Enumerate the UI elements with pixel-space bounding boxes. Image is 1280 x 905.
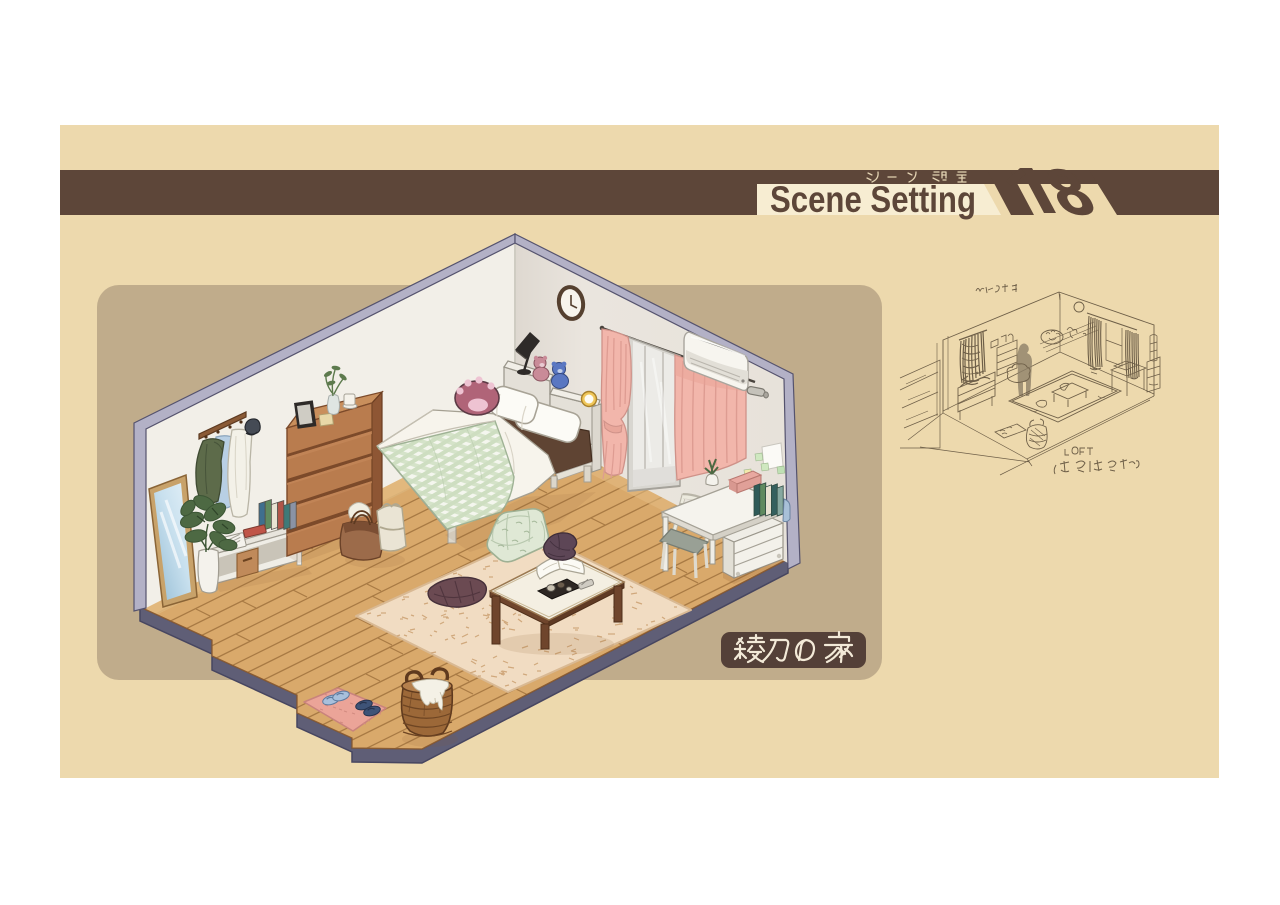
svg-text:Scene Setting: Scene Setting xyxy=(770,179,976,220)
